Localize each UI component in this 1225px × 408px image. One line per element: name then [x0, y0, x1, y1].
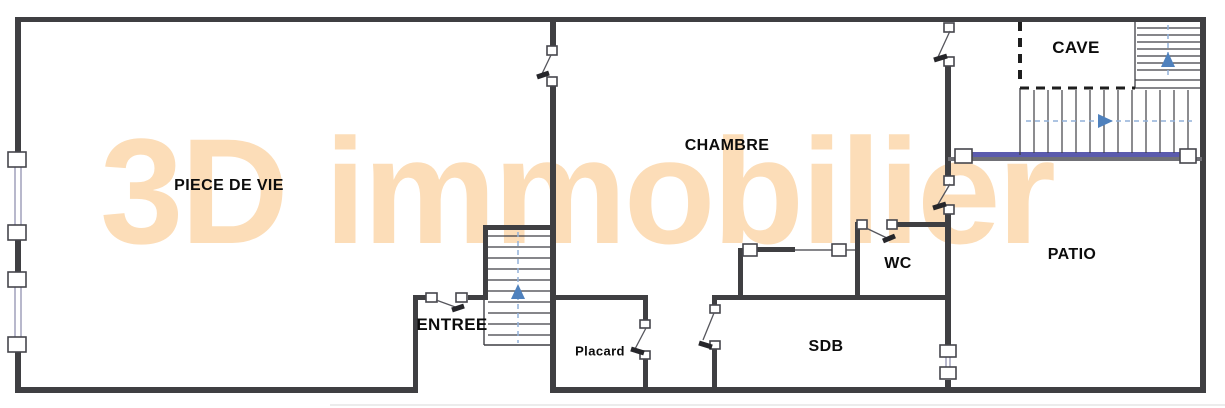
patio-window-end	[955, 149, 972, 163]
cave-door-leaf	[938, 31, 950, 57]
left-window-2-glazing	[15, 286, 21, 338]
left-window-1-glazing	[15, 166, 21, 226]
wall-left-upper	[15, 17, 21, 152]
wall-entree-vertical	[413, 295, 418, 390]
chambre-door-jamb	[547, 46, 557, 55]
cave-lower-arrow-head	[1098, 114, 1113, 128]
wall-wc-top-b	[895, 222, 951, 227]
wall-placard-right-a	[643, 300, 648, 320]
wall-sdb-patio-b	[945, 380, 951, 393]
room-label-piece-de-vie: PIECE DE VIE	[174, 177, 284, 195]
wall-patio-top-base	[948, 157, 1202, 161]
wall-right	[1200, 17, 1206, 393]
room-label-sdb: SDB	[809, 338, 844, 356]
wall-entree-right-seg	[468, 295, 483, 300]
sdb-door-leaf	[703, 313, 714, 340]
wc-door-jamb	[887, 220, 897, 229]
wall-chambre-patio-b	[945, 214, 951, 345]
wall-sejour-chambre-lower	[550, 86, 556, 387]
placard-door-leaf	[635, 328, 646, 349]
wall-top	[15, 17, 1206, 22]
patio-window-end	[1180, 149, 1196, 163]
sdb-window-end	[940, 345, 956, 357]
left-window-1-end	[8, 152, 26, 167]
wall-stair-left	[483, 225, 488, 300]
entree-door-jamb	[426, 293, 437, 302]
patio-door-jamb	[944, 176, 954, 185]
wall-sdb-top	[712, 295, 951, 300]
room-label-wc: WC	[884, 255, 911, 273]
room-label-cave: CAVE	[1052, 38, 1100, 58]
placard-door-flag	[631, 349, 644, 353]
cave-door-jamb	[944, 23, 954, 32]
wall-stair-top	[483, 225, 553, 230]
wall-bottom-right	[550, 387, 1206, 393]
wall-sdb-left-b	[712, 348, 717, 392]
placard-door-jamb	[640, 320, 650, 328]
shower-slider-end	[832, 244, 846, 256]
wc-door-jamb	[857, 220, 867, 229]
wall-placard-top	[556, 295, 648, 300]
entree-door-jamb	[456, 293, 467, 302]
shower-slider-end	[743, 244, 757, 256]
left-window-2-end	[8, 337, 26, 352]
room-label-placard: Placard	[575, 344, 625, 359]
wall-left-lower	[15, 352, 21, 393]
sdb-window-end	[940, 367, 956, 379]
wall-sejour-chambre-upper	[550, 22, 556, 46]
room-label-patio: PATIO	[1048, 246, 1097, 264]
floor-plan: 3D immobilier PIECE DE VIECHAMBRECAVEENT…	[0, 0, 1225, 408]
sdb-door-jamb	[710, 305, 720, 313]
shower-slider-panel	[757, 247, 795, 252]
wall-left-mid	[15, 240, 21, 272]
wall-wc-left	[855, 225, 860, 300]
wall-placard-right-b	[643, 358, 648, 392]
wall-bottom-left	[15, 387, 418, 393]
room-label-chambre: CHAMBRE	[685, 137, 770, 155]
left-window-1-end	[8, 225, 26, 240]
cave-upper-arrow-head	[1161, 52, 1175, 67]
left-window-2-end	[8, 272, 26, 287]
chambre-door-jamb	[547, 77, 557, 86]
room-label-entree: ENTREE	[416, 315, 487, 335]
